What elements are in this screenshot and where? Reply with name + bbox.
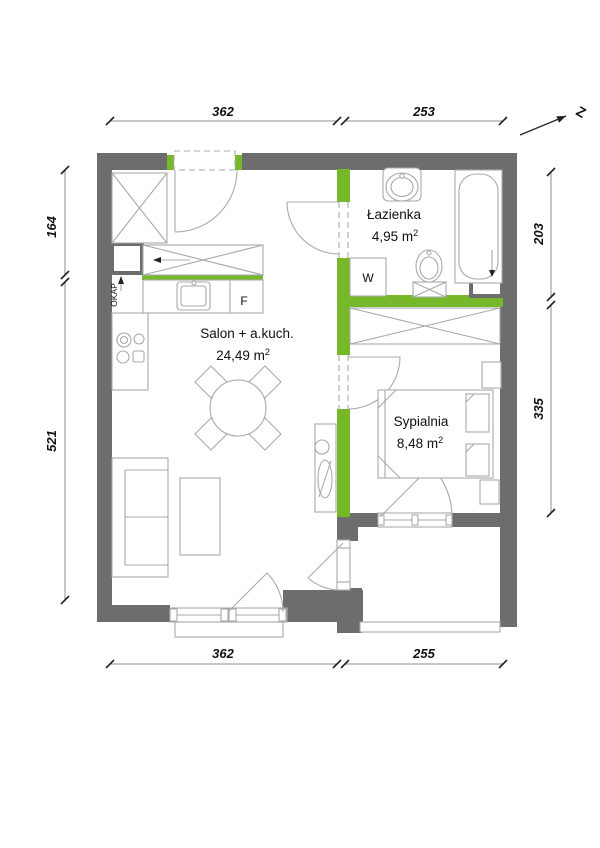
wall-bedroom-bottom-left <box>350 513 378 527</box>
entrance-jamb-left <box>167 155 174 170</box>
salon-window-door-leaf <box>228 573 267 612</box>
salon-window-door-swing <box>267 573 283 612</box>
wall-left <box>97 153 112 622</box>
dim-top-1: 362 <box>212 104 234 119</box>
partition-vertical-top <box>337 169 350 202</box>
dimension-left: 164 521 <box>44 166 69 604</box>
salon-balcony-door <box>308 540 350 590</box>
bathtub <box>455 170 502 283</box>
nightstand <box>482 362 501 388</box>
bathroom-door-swing <box>287 202 339 254</box>
living-name: Salon + a.kuch. <box>200 326 293 341</box>
bedroom-wardrobe <box>350 308 500 344</box>
bedroom-name: Sypialnia <box>394 414 449 429</box>
salon-window-mullion <box>221 609 228 621</box>
kitchen-cooktop-counter <box>112 313 148 390</box>
salon-window <box>170 573 287 637</box>
balcony-railing <box>360 622 500 632</box>
washing-machine-label: W <box>362 271 374 285</box>
nightstand <box>480 480 499 504</box>
room-label-living: Salon + a.kuch. 24,49 m2 <box>200 326 293 363</box>
partition-vertical-bottom <box>337 409 350 517</box>
entrance-door <box>174 151 237 232</box>
dimension-right: 203 335 <box>531 168 555 517</box>
wall-top-right <box>242 153 517 170</box>
bathroom-door <box>287 202 348 258</box>
bedroom-balcony-door-mullion <box>412 515 418 525</box>
kitchen-upper-cabinets <box>143 245 263 275</box>
floor-plan-page: F OKAP <box>0 0 600 848</box>
fridge-label: F <box>240 294 247 308</box>
salon-window-mullion <box>229 609 236 621</box>
bathroom-area: 4,95 m2 <box>372 228 418 244</box>
dim-right-2: 335 <box>531 397 546 419</box>
coffee-table <box>180 478 220 555</box>
entrance-jamb-right <box>235 155 242 170</box>
basin-faucet <box>400 174 404 178</box>
salon-window-mullion <box>170 609 177 621</box>
floor-plan-svg: F OKAP <box>0 0 600 848</box>
dining-set <box>195 366 281 450</box>
kitchen-shaft <box>112 244 142 273</box>
dining-table <box>210 380 266 436</box>
north-label: Z <box>574 103 590 121</box>
washing-machine: W <box>350 258 386 296</box>
kitchen-faucet <box>192 281 196 285</box>
wall-balcony-left-stub <box>337 588 362 633</box>
tv-bench <box>315 424 336 512</box>
bed <box>378 390 493 478</box>
dim-bottom-1: 362 <box>212 646 234 661</box>
entry-wardrobe <box>112 173 167 243</box>
dimension-top: 362 253 <box>106 104 507 125</box>
entrance-opening <box>174 151 235 170</box>
okap-text: OKAP <box>109 283 119 307</box>
salon-window-sill <box>175 622 283 637</box>
dim-right-1: 203 <box>531 222 546 245</box>
room-label-bathroom: Łazienka 4,95 m2 <box>367 207 422 244</box>
okap-arrow-head <box>118 276 124 284</box>
dim-bottom-2: 255 <box>412 646 435 661</box>
entrance-door-swing <box>175 170 237 232</box>
north-arrow-head <box>556 116 566 123</box>
wall-bedroom-bottom-right <box>452 513 500 527</box>
kitchen-sink-basin <box>181 286 206 306</box>
north-arrow: Z <box>520 103 589 135</box>
bathroom-name: Łazienka <box>367 207 422 222</box>
toilet-flush <box>427 251 431 255</box>
washbasin <box>383 168 421 201</box>
toilet <box>413 250 446 297</box>
dimension-bottom: 362 255 <box>106 646 507 668</box>
bedroom-area: 8,48 m2 <box>397 435 443 451</box>
living-area: 24,49 m2 <box>216 347 270 363</box>
dim-left-2: 521 <box>44 430 59 452</box>
dim-top-2: 253 <box>412 104 435 119</box>
dim-left-1: 164 <box>44 215 59 237</box>
pillow <box>466 394 489 432</box>
bedroom-balcony-door-mullion <box>446 515 452 525</box>
sofa <box>112 458 168 577</box>
wall-bottom-left <box>97 605 170 622</box>
